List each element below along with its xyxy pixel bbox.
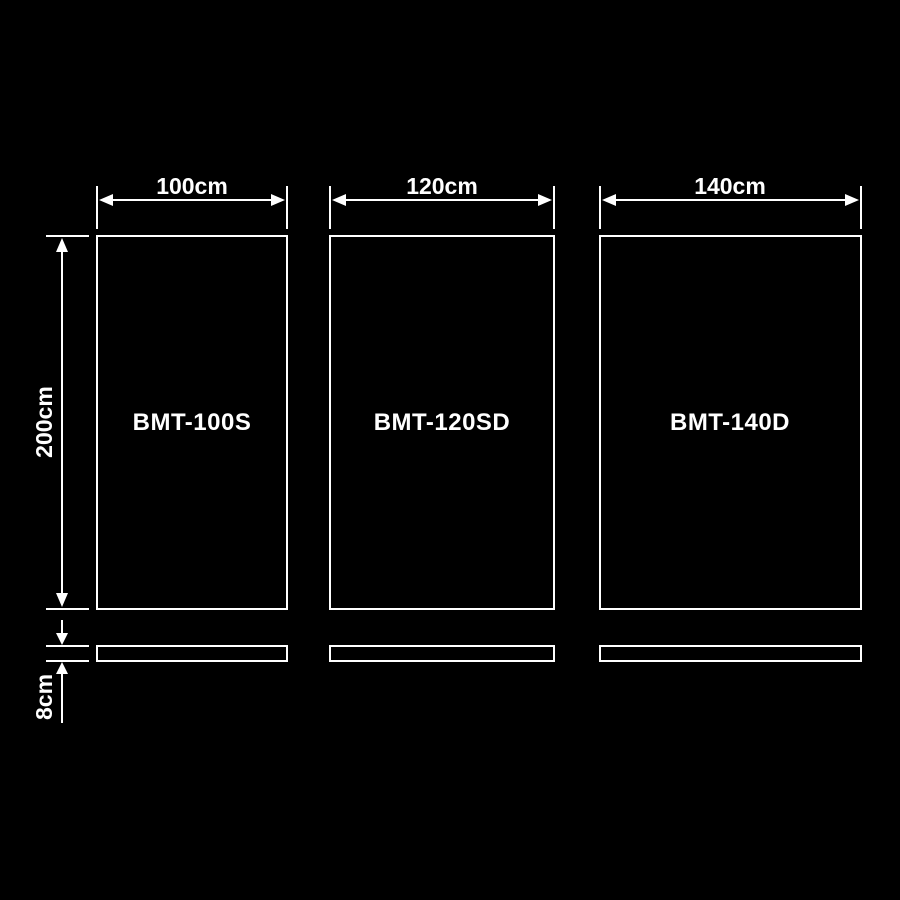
width-label: 120cm (406, 173, 478, 199)
width-label: 140cm (694, 173, 766, 199)
dimension-diagram: 100cm BMT-100S 120cm BMT-120SD 140cm BMT… (0, 0, 900, 900)
width-label: 100cm (156, 173, 228, 199)
model-label: BMT-120SD (374, 409, 511, 436)
base-thickness-label: 8cm (31, 674, 57, 720)
model-label: BMT-100S (133, 409, 252, 436)
diagram-canvas: 100cm BMT-100S 120cm BMT-120SD 140cm BMT… (0, 0, 900, 900)
height-label: 200cm (31, 386, 57, 458)
model-label: BMT-140D (670, 409, 790, 436)
background (0, 0, 900, 900)
